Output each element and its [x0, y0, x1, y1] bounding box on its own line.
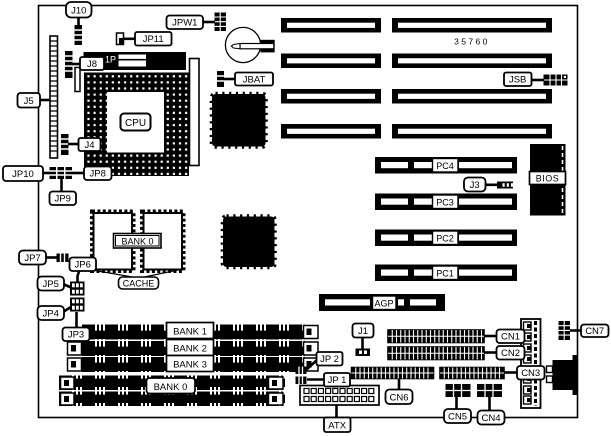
svg-text:J3: J3 [470, 180, 480, 191]
svg-text:J8: J8 [87, 59, 97, 70]
svg-text:BANK 3: BANK 3 [173, 360, 207, 371]
svg-text:JP9: JP9 [55, 194, 71, 205]
svg-text:J5: J5 [24, 96, 34, 107]
svg-text:JP 2: JP 2 [320, 354, 339, 365]
svg-text:JSB: JSB [509, 75, 526, 86]
svg-text:JPW1: JPW1 [172, 18, 197, 29]
svg-text:J1: J1 [358, 326, 368, 337]
svg-text:CACHE: CACHE [123, 279, 155, 289]
svg-text:JP3: JP3 [68, 330, 84, 341]
svg-text:AGP: AGP [374, 298, 393, 308]
svg-text:J10: J10 [71, 6, 86, 17]
svg-text:PC4: PC4 [436, 161, 454, 171]
svg-text:CN6: CN6 [389, 393, 408, 404]
svg-text:CN4: CN4 [481, 413, 500, 424]
svg-text:JP 1: JP 1 [328, 375, 347, 386]
svg-text:1P: 1P [105, 55, 116, 65]
svg-text:CPU: CPU [125, 118, 146, 129]
svg-text:JP4: JP4 [43, 309, 59, 320]
svg-text:BIOS: BIOS [536, 174, 560, 184]
svg-text:PC2: PC2 [436, 233, 454, 243]
svg-text:JP10: JP10 [12, 169, 34, 180]
svg-text:BANK 0: BANK 0 [154, 382, 188, 393]
svg-text:JP11: JP11 [143, 34, 164, 45]
svg-text:CN5: CN5 [448, 412, 467, 423]
svg-text:JP7: JP7 [24, 253, 40, 264]
svg-text:CN7: CN7 [585, 326, 604, 337]
svg-text:JP6: JP6 [75, 260, 91, 271]
svg-text:PC1: PC1 [436, 268, 454, 278]
svg-text:35760: 35760 [454, 37, 490, 47]
svg-text:JP5: JP5 [43, 279, 59, 290]
svg-text:BANK 2: BANK 2 [173, 344, 207, 355]
svg-text:J4: J4 [84, 140, 94, 151]
svg-text:JP8: JP8 [90, 169, 106, 180]
svg-text:BANK 0: BANK 0 [121, 237, 153, 247]
svg-text:CN2: CN2 [501, 348, 520, 359]
svg-text:CN1: CN1 [501, 332, 520, 343]
svg-text:JBAT: JBAT [243, 75, 266, 86]
svg-text:PC3: PC3 [436, 197, 454, 207]
svg-text:CN3: CN3 [521, 368, 540, 379]
svg-text:ATX: ATX [328, 421, 346, 432]
svg-text:BANK 1: BANK 1 [173, 327, 207, 338]
